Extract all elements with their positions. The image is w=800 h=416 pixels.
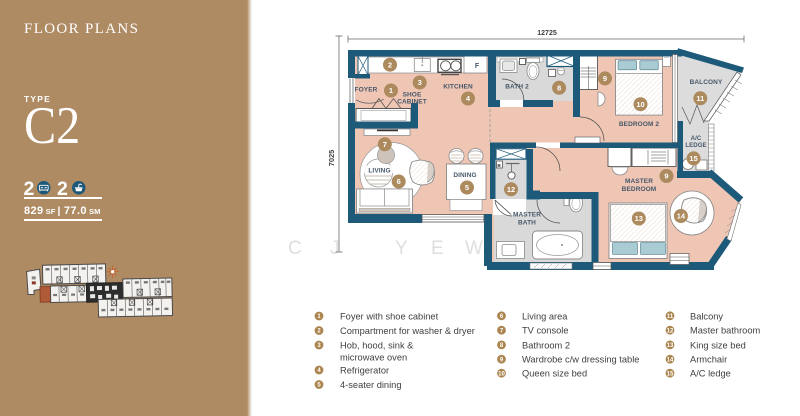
- svg-text:7025: 7025: [327, 150, 336, 167]
- svg-text:Bathroom 2: Bathroom 2: [522, 340, 570, 350]
- svg-text:9: 9: [664, 172, 668, 181]
- svg-text:13: 13: [635, 214, 643, 223]
- svg-text:F: F: [475, 63, 480, 70]
- svg-text:12: 12: [507, 185, 515, 194]
- svg-text:5: 5: [465, 183, 469, 192]
- svg-text:9: 9: [603, 74, 607, 83]
- svg-text:6: 6: [397, 177, 401, 186]
- svg-text:Foyer with shoe cabinet: Foyer with shoe cabinet: [340, 312, 439, 322]
- svg-text:BALCONY: BALCONY: [690, 79, 723, 86]
- svg-text:Hob, hood, sink &: Hob, hood, sink &: [340, 341, 414, 351]
- svg-text:15: 15: [667, 371, 674, 377]
- svg-text:11: 11: [696, 94, 704, 103]
- svg-text:10: 10: [636, 100, 644, 109]
- svg-text:1: 1: [389, 86, 393, 95]
- svg-text:E: E: [431, 238, 444, 259]
- svg-text:A/C ledge: A/C ledge: [690, 369, 731, 379]
- svg-text:3: 3: [418, 78, 422, 87]
- svg-text:10: 10: [498, 371, 505, 377]
- svg-text:CABINET: CABINET: [397, 99, 427, 106]
- svg-text:11: 11: [667, 314, 674, 320]
- svg-text:TV console: TV console: [522, 326, 569, 336]
- svg-text:13: 13: [667, 343, 674, 349]
- svg-text:Balcony: Balcony: [690, 311, 723, 321]
- svg-text:W: W: [465, 238, 483, 259]
- svg-text:15: 15: [689, 154, 697, 163]
- svg-text:BEDROOM 2: BEDROOM 2: [619, 121, 660, 128]
- svg-text:7: 7: [383, 140, 387, 149]
- svg-text:Living area: Living area: [522, 311, 568, 321]
- svg-text:Queen size bed: Queen size bed: [522, 369, 587, 379]
- svg-text:BATH 2: BATH 2: [505, 84, 529, 91]
- svg-text:A/C: A/C: [691, 136, 702, 142]
- svg-text:Y: Y: [395, 238, 408, 259]
- svg-text:Compartment for washer & dryer: Compartment for washer & dryer: [340, 326, 475, 336]
- svg-text:2: 2: [388, 60, 392, 69]
- svg-text:8: 8: [557, 83, 561, 92]
- svg-text:SHOE: SHOE: [403, 92, 422, 99]
- svg-text:LIVING: LIVING: [368, 168, 390, 175]
- svg-text:J: J: [330, 238, 340, 259]
- svg-text:C: C: [288, 238, 302, 259]
- svg-text:BATH: BATH: [518, 220, 536, 227]
- svg-text:KITCHEN: KITCHEN: [443, 84, 473, 91]
- svg-text:LEDGE: LEDGE: [685, 143, 706, 149]
- svg-text:Armchair: Armchair: [690, 355, 727, 365]
- svg-text:DINING: DINING: [453, 172, 476, 179]
- svg-text:MASTER: MASTER: [513, 212, 541, 219]
- svg-text:12725: 12725: [537, 30, 557, 37]
- svg-text:14: 14: [667, 357, 674, 363]
- svg-text:BEDROOM: BEDROOM: [622, 186, 657, 193]
- svg-text:Master bathroom: Master bathroom: [690, 326, 761, 336]
- svg-text:FOYER: FOYER: [355, 87, 378, 94]
- svg-text:4-seater dining: 4-seater dining: [340, 380, 402, 390]
- svg-text:Refrigerator: Refrigerator: [340, 366, 389, 376]
- svg-text:King size bed: King size bed: [690, 340, 746, 350]
- svg-text:Wardrobe c/w dressing table: Wardrobe c/w dressing table: [522, 355, 639, 365]
- svg-text:microwave oven: microwave oven: [340, 353, 407, 363]
- svg-text:14: 14: [677, 212, 686, 221]
- svg-text:12: 12: [667, 328, 674, 334]
- svg-text:MASTER: MASTER: [625, 178, 653, 185]
